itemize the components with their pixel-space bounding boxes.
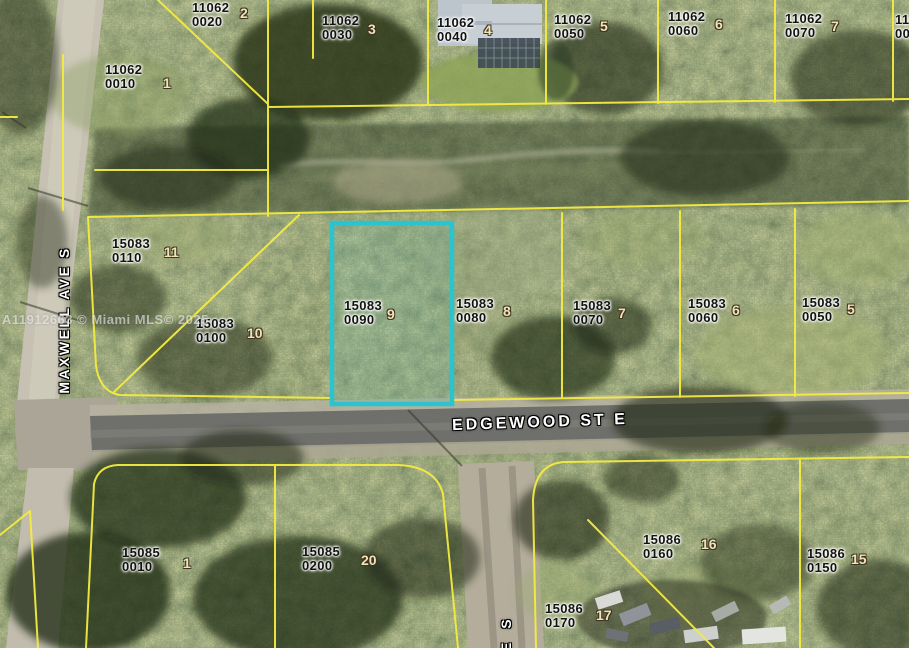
parcel-label: 15086 0170 17: [545, 602, 583, 629]
parcel-label: 11062 0010 1: [105, 63, 142, 90]
parcel-folio-number: 0150: [807, 561, 845, 575]
parcel-label: 11062 00: [895, 13, 909, 40]
parcel-label: 15085 0200 20: [302, 545, 340, 572]
parcel-label: 15085 0010 1: [122, 546, 160, 573]
mls-watermark: A11912663 © Miami MLS© 2025: [2, 312, 209, 327]
parcel-folio-number: 0080: [456, 311, 494, 325]
lot-number: 7: [831, 19, 839, 33]
parcel-block-number: 15086: [545, 602, 583, 616]
parcel-folio-number: 0030: [322, 28, 359, 42]
parcel-folio-number: 0100: [196, 331, 234, 345]
lot-number: 10: [247, 326, 263, 340]
parcel-label: 11062 0040 4: [437, 16, 474, 43]
parcel-label: 15083 0060 6: [688, 297, 726, 324]
aerial-parcel-map[interactable]: MAXWELL AVE S EDGEWOOD ST E E S A1191266…: [0, 0, 909, 648]
parcel-block-number: 11062: [437, 16, 474, 30]
parcel-block-number: 15083: [802, 296, 840, 310]
parcel-block-number: 11062: [895, 13, 909, 27]
parcel-block-number: 15086: [807, 547, 845, 561]
parcel-label: 11062 0060 6: [668, 10, 705, 37]
parcel-label: 15083 0110 11: [112, 237, 150, 264]
parcel-folio-number: 0070: [785, 26, 822, 40]
parcel-label: 15083 0070 7: [573, 299, 611, 326]
parcel-block-number: 11062: [785, 12, 822, 26]
parcel-label: 15083 0050 5: [802, 296, 840, 323]
parcel-block-number: 15083: [688, 297, 726, 311]
parcel-label: 11062 0030 3: [322, 14, 359, 41]
parcel-block-number: 15086: [643, 533, 681, 547]
lot-number: 16: [701, 537, 717, 551]
parcel-label: 15083 0080 8: [456, 297, 494, 324]
lot-number: 1: [163, 76, 171, 90]
parcel-block-number: 15083: [573, 299, 611, 313]
parcel-folio-number: 0060: [688, 311, 726, 325]
parcel-label: 11062 0050 5: [554, 13, 591, 40]
lot-number: 3: [368, 22, 376, 36]
parcel-folio-number: 00: [895, 27, 909, 41]
parcel-folio-number: 0040: [437, 30, 474, 44]
lot-number: 15: [851, 552, 867, 566]
lot-number: 5: [600, 19, 608, 33]
lot-number: 8: [503, 304, 511, 318]
parcel-block-number: 11062: [192, 1, 229, 15]
parcel-folio-number: 0090: [344, 313, 382, 327]
lot-number: 1: [183, 556, 191, 570]
parcel-label: 11062 0020 2: [192, 1, 229, 28]
parcel-folio-number: 0050: [554, 27, 591, 41]
lot-number: 5: [847, 302, 855, 316]
parcel-folio-number: 0110: [112, 251, 150, 265]
parcel-folio-number: 0050: [802, 310, 840, 324]
lot-number: 11: [164, 245, 179, 259]
parcel-folio-number: 0020: [192, 15, 229, 29]
parcel-label: 15083 0090 9: [344, 299, 382, 326]
lot-number: 9: [387, 307, 395, 321]
parcel-label: 15086 0160 16: [643, 533, 681, 560]
parcel-folio-number: 0010: [122, 560, 160, 574]
parcel-folio-number: 0160: [643, 547, 681, 561]
lot-number: 2: [240, 6, 248, 20]
parcel-folio-number: 0200: [302, 559, 340, 573]
parcel-label: 11062 0070 7: [785, 12, 822, 39]
parcel-block-number: 11062: [322, 14, 359, 28]
lot-number: 17: [596, 608, 612, 622]
lot-number: 7: [618, 306, 626, 320]
parcel-block-number: 11062: [668, 10, 705, 24]
parcel-block-number: 15083: [112, 237, 150, 251]
parcel-block-number: 15085: [122, 546, 160, 560]
parcel-label: 15086 0150 15: [807, 547, 845, 574]
lot-number: 6: [715, 17, 723, 31]
parcel-folio-number: 0070: [573, 313, 611, 327]
street-label-partial: E S: [498, 614, 514, 648]
parcel-block-number: 15083: [344, 299, 382, 313]
parcel-folio-number: 0010: [105, 77, 142, 91]
pool-screen-enclosure: [478, 38, 540, 68]
parcel-folio-number: 0060: [668, 24, 705, 38]
parcel-block-number: 15085: [302, 545, 340, 559]
parcel-block-number: 15083: [456, 297, 494, 311]
parcel-block-number: 11062: [105, 63, 142, 77]
lot-number: 6: [732, 303, 740, 317]
parcel-block-number: 11062: [554, 13, 591, 27]
parcel-folio-number: 0170: [545, 616, 583, 630]
lot-number: 20: [361, 553, 377, 567]
lot-number: 4: [484, 23, 492, 37]
